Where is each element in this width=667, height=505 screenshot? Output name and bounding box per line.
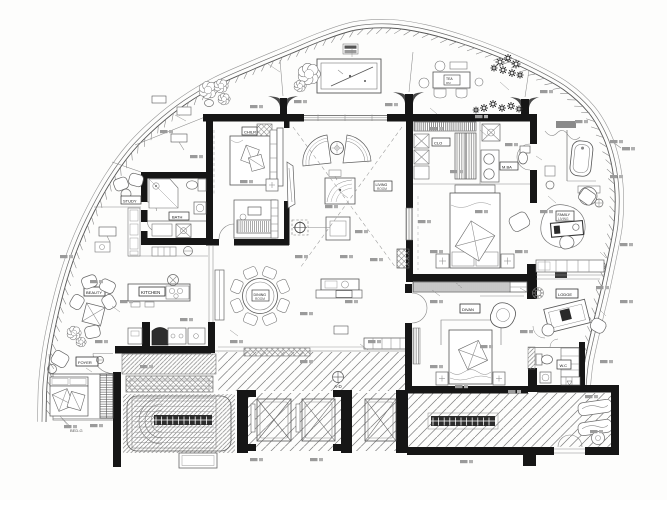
svg-text:FOYER: FOYER bbox=[78, 360, 92, 365]
svg-text:CLO: CLO bbox=[434, 141, 442, 146]
svg-text:ROOM: ROOM bbox=[377, 187, 387, 191]
svg-text:BATH: BATH bbox=[172, 215, 182, 220]
svg-text:DIVAN: DIVAN bbox=[462, 307, 474, 312]
svg-text:LIVING: LIVING bbox=[558, 217, 569, 221]
svg-text:CHILR: CHILR bbox=[244, 130, 256, 135]
svg-text:LODGE: LODGE bbox=[558, 292, 572, 297]
svg-text:A-D: A-D bbox=[334, 384, 343, 389]
svg-text:KITCHEN: KITCHEN bbox=[141, 290, 160, 295]
svg-text:M.BA: M.BA bbox=[502, 165, 512, 170]
svg-text:RM: RM bbox=[446, 81, 451, 85]
svg-text:STUDY: STUDY bbox=[123, 199, 137, 204]
svg-text:BEAUTY: BEAUTY bbox=[86, 290, 102, 295]
svg-text:W.C: W.C bbox=[560, 363, 568, 368]
svg-text:BED-G: BED-G bbox=[70, 428, 83, 433]
svg-text:ROOM: ROOM bbox=[255, 297, 265, 301]
